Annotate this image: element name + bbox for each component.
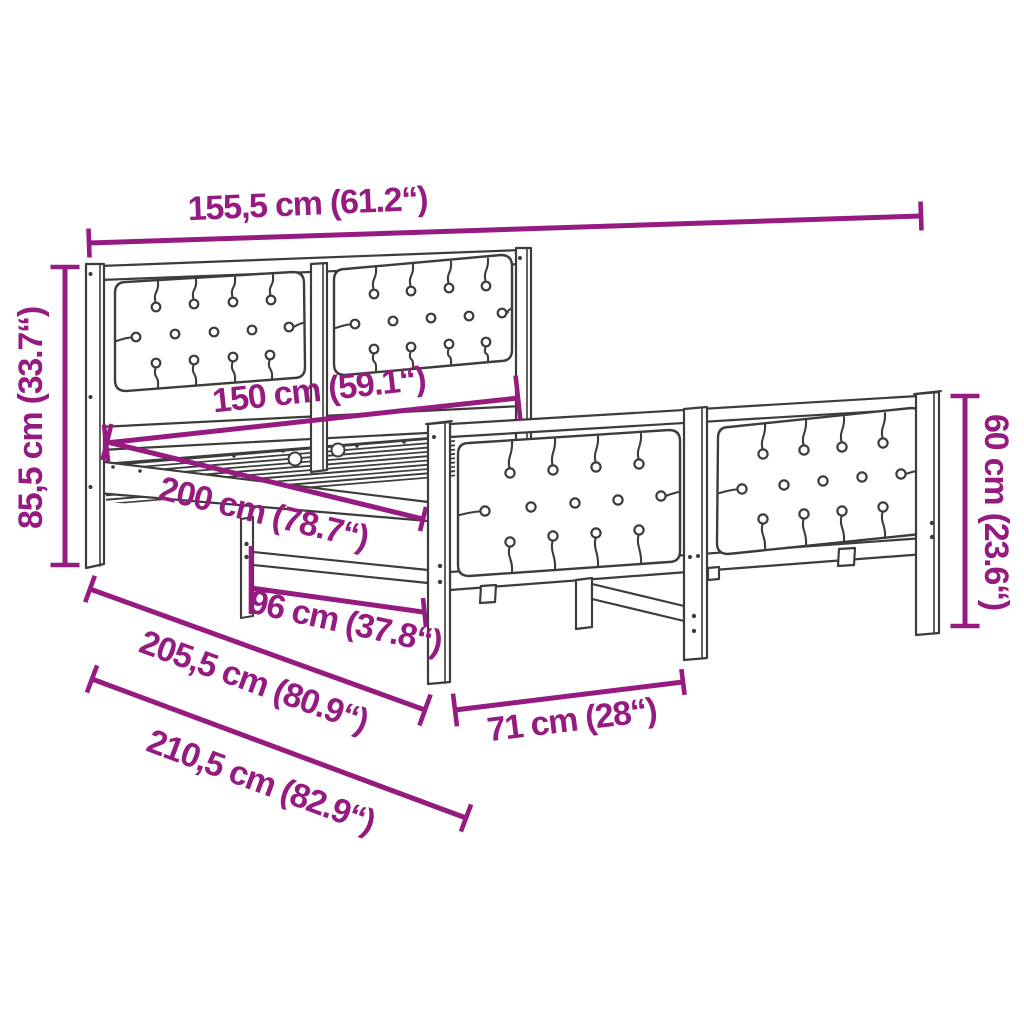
svg-text:85,5 cm (33.7“): 85,5 cm (33.7“) <box>12 307 50 529</box>
svg-text:60 cm (23.6“): 60 cm (23.6“) <box>977 414 1015 610</box>
